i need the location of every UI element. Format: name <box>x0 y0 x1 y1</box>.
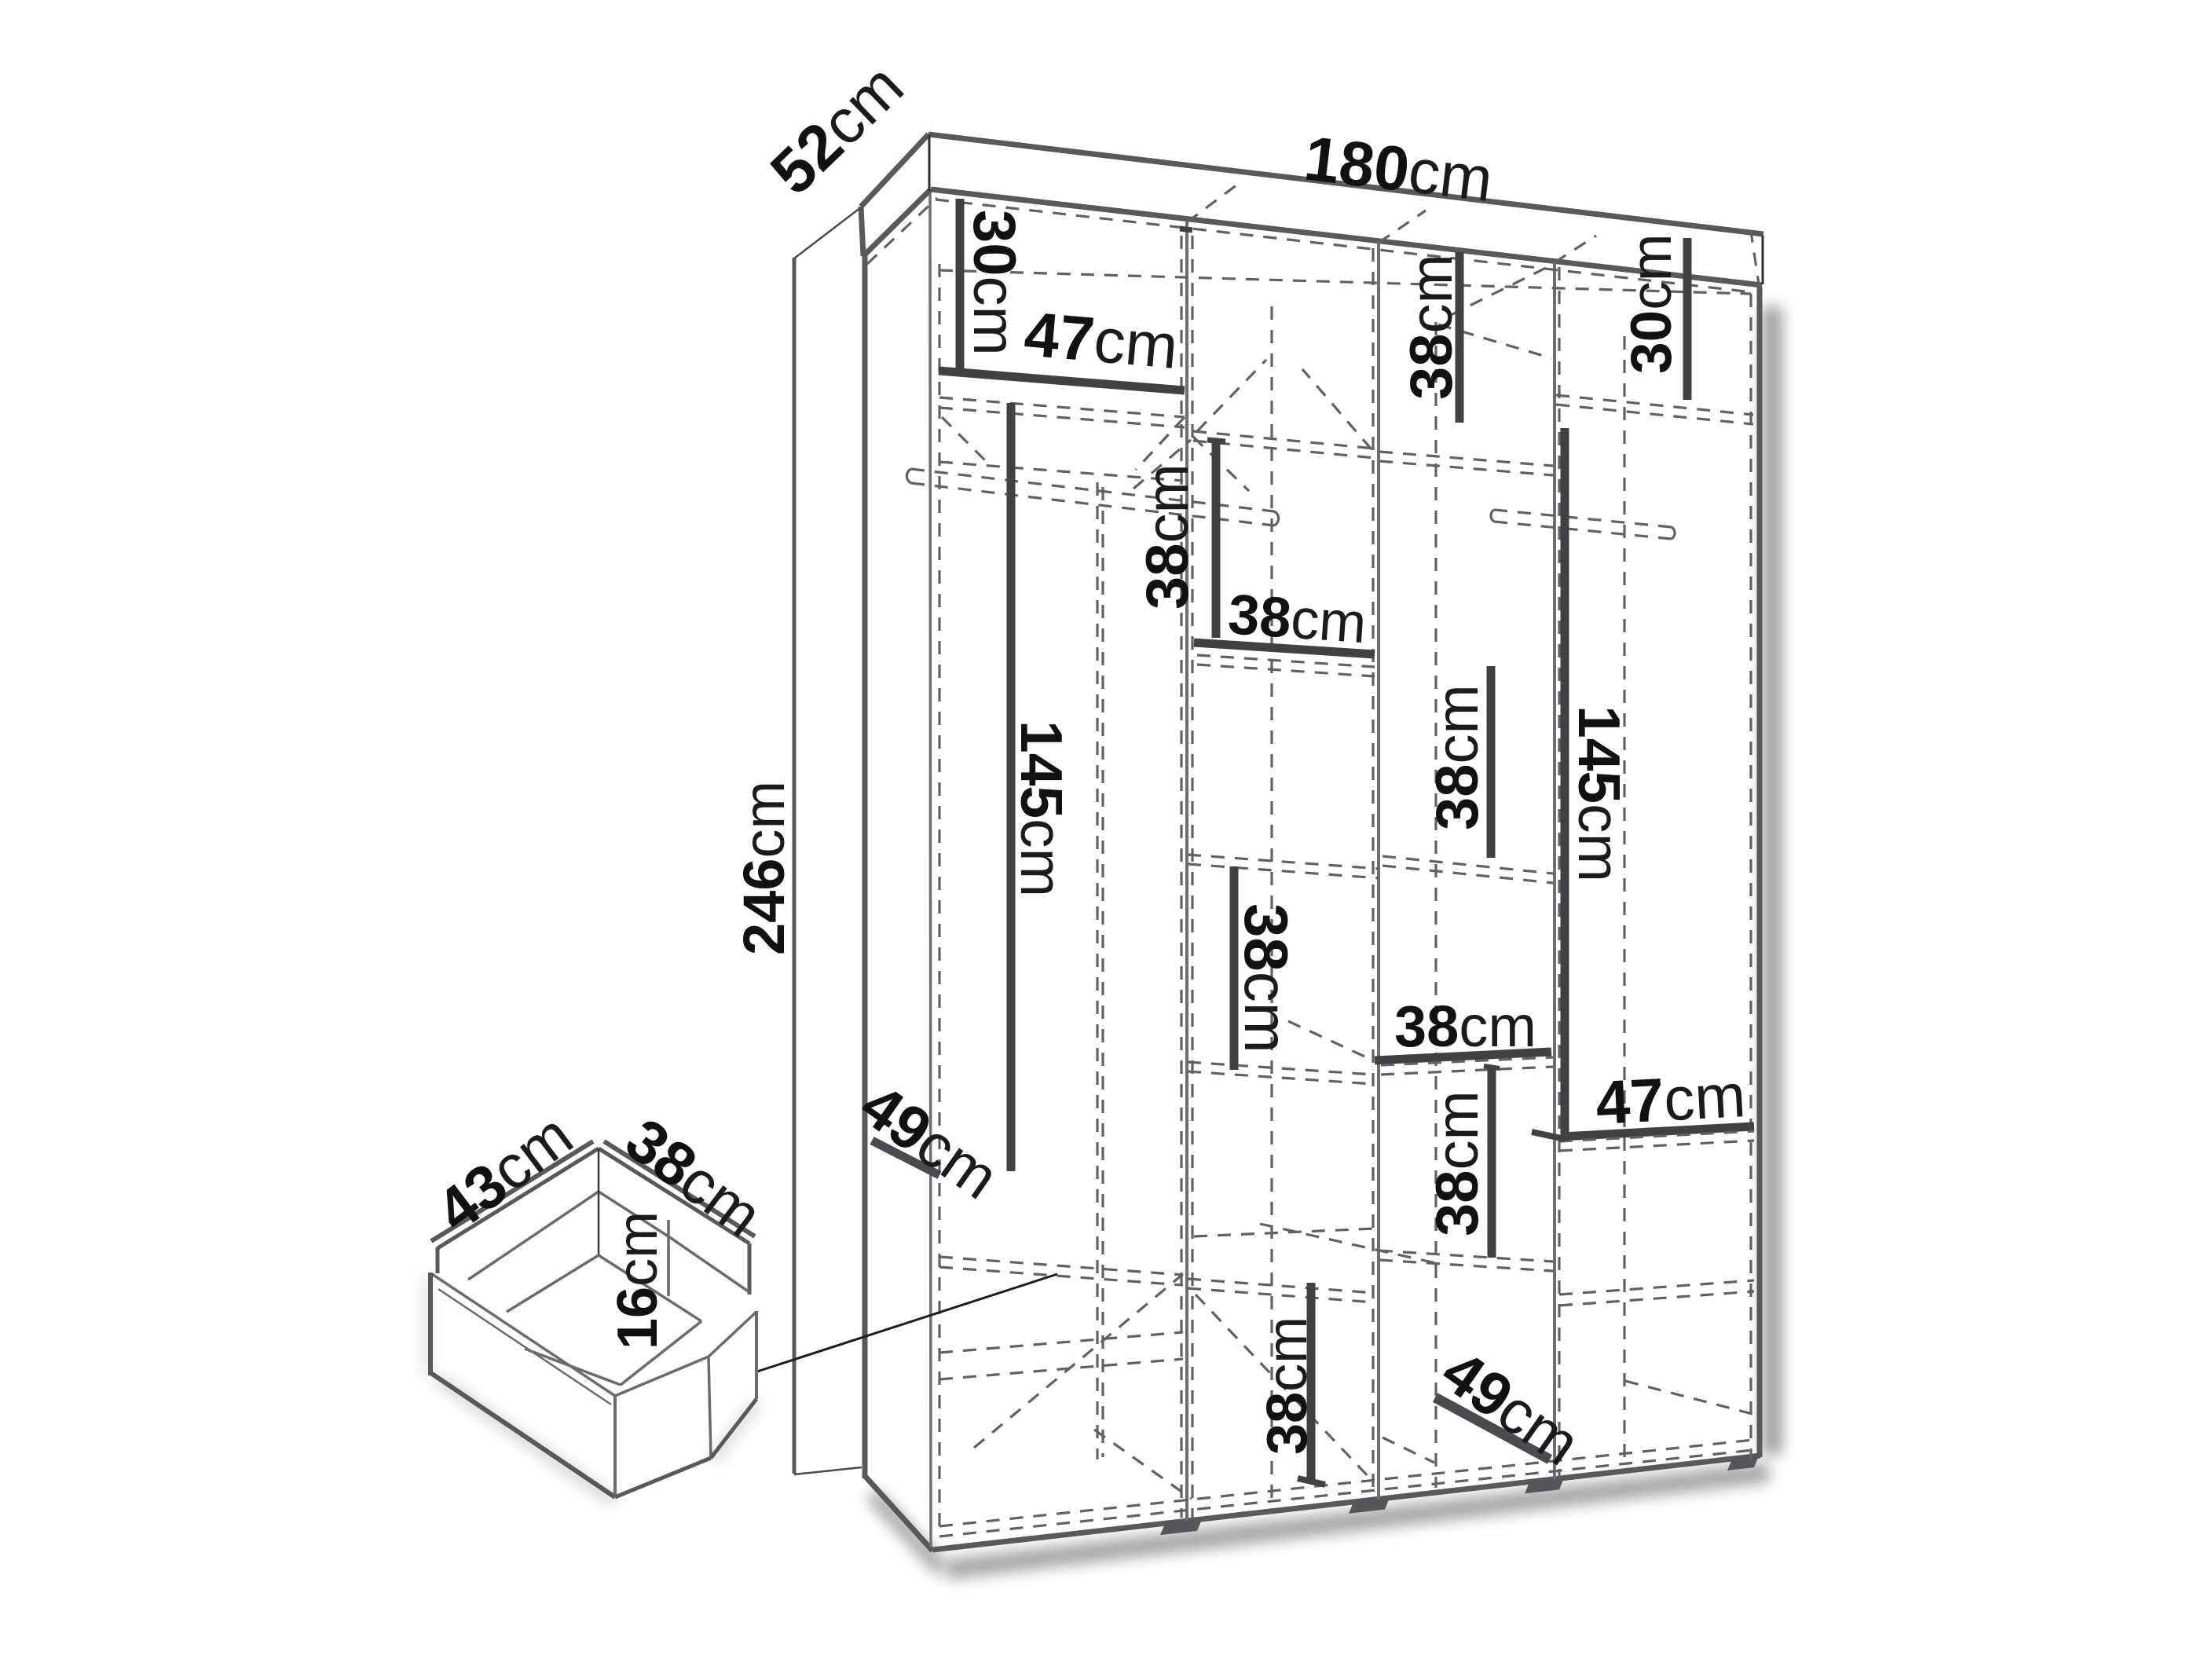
svg-text:246cm: 246cm <box>731 781 797 955</box>
svg-text:38cm: 38cm <box>1424 684 1491 830</box>
svg-text:38cm: 38cm <box>1256 1317 1319 1455</box>
svg-text:47cm: 47cm <box>1594 1060 1747 1137</box>
svg-text:30cm: 30cm <box>1620 233 1683 374</box>
svg-text:30cm: 30cm <box>961 210 1027 356</box>
svg-text:47cm: 47cm <box>1022 298 1181 382</box>
svg-text:38cm: 38cm <box>1398 254 1465 400</box>
svg-text:38cm: 38cm <box>1424 1090 1491 1236</box>
svg-text:38cm: 38cm <box>1394 994 1536 1059</box>
svg-text:38cm: 38cm <box>1134 463 1201 610</box>
svg-text:145cm: 145cm <box>1009 720 1075 897</box>
svg-text:38cm: 38cm <box>1226 583 1368 655</box>
svg-text:38cm: 38cm <box>1232 903 1301 1053</box>
svg-text:145cm: 145cm <box>1566 705 1632 882</box>
svg-text:16cm: 16cm <box>606 1211 669 1350</box>
